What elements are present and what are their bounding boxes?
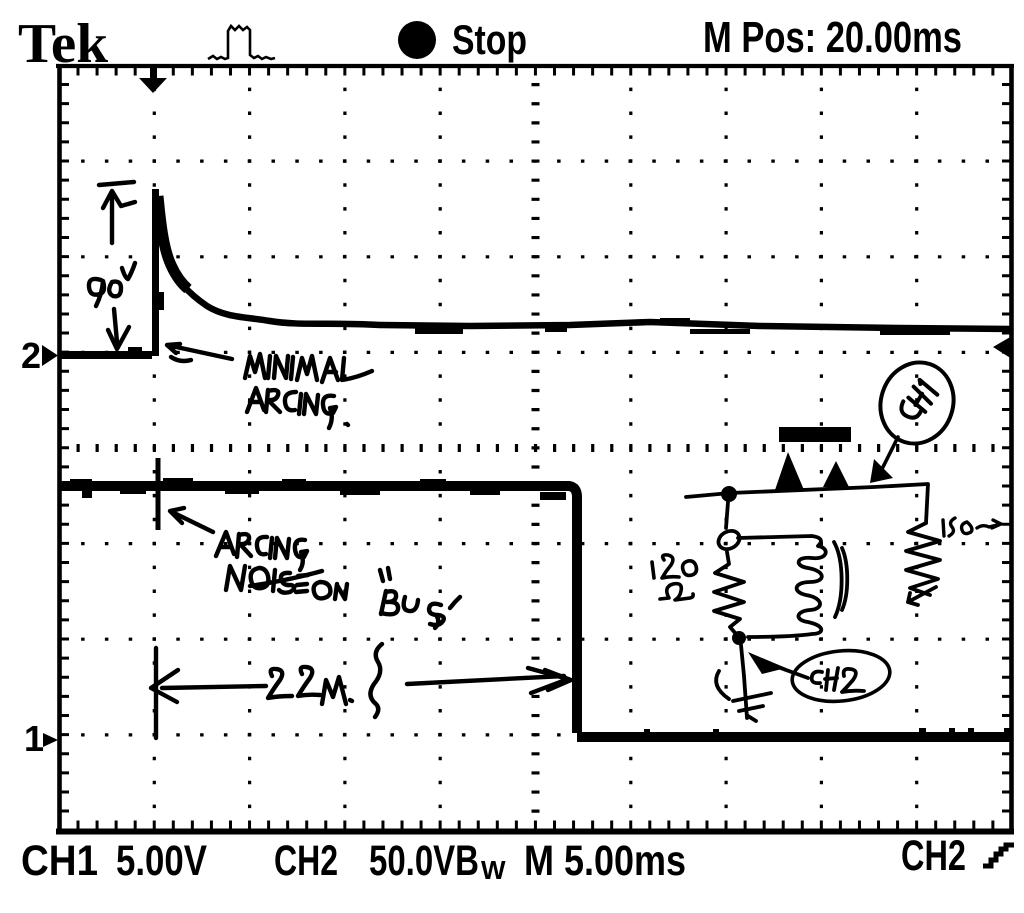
svg-text:1: 1 <box>24 718 44 759</box>
svg-text:M 5.00ms: M 5.00ms <box>524 837 686 885</box>
svg-text:CH2: CH2 <box>274 837 338 885</box>
svg-text:CH1: CH1 <box>21 837 98 885</box>
svg-text:Stop: Stop <box>452 16 527 63</box>
svg-text:W: W <box>481 855 506 885</box>
svg-text:50.0VB: 50.0VB <box>369 837 479 885</box>
svg-text:2: 2 <box>21 335 41 376</box>
svg-text:CH2: CH2 <box>901 832 966 880</box>
svg-text:5.00V: 5.00V <box>116 837 207 885</box>
svg-text:M Pos: 20.00ms: M Pos: 20.00ms <box>703 13 962 62</box>
